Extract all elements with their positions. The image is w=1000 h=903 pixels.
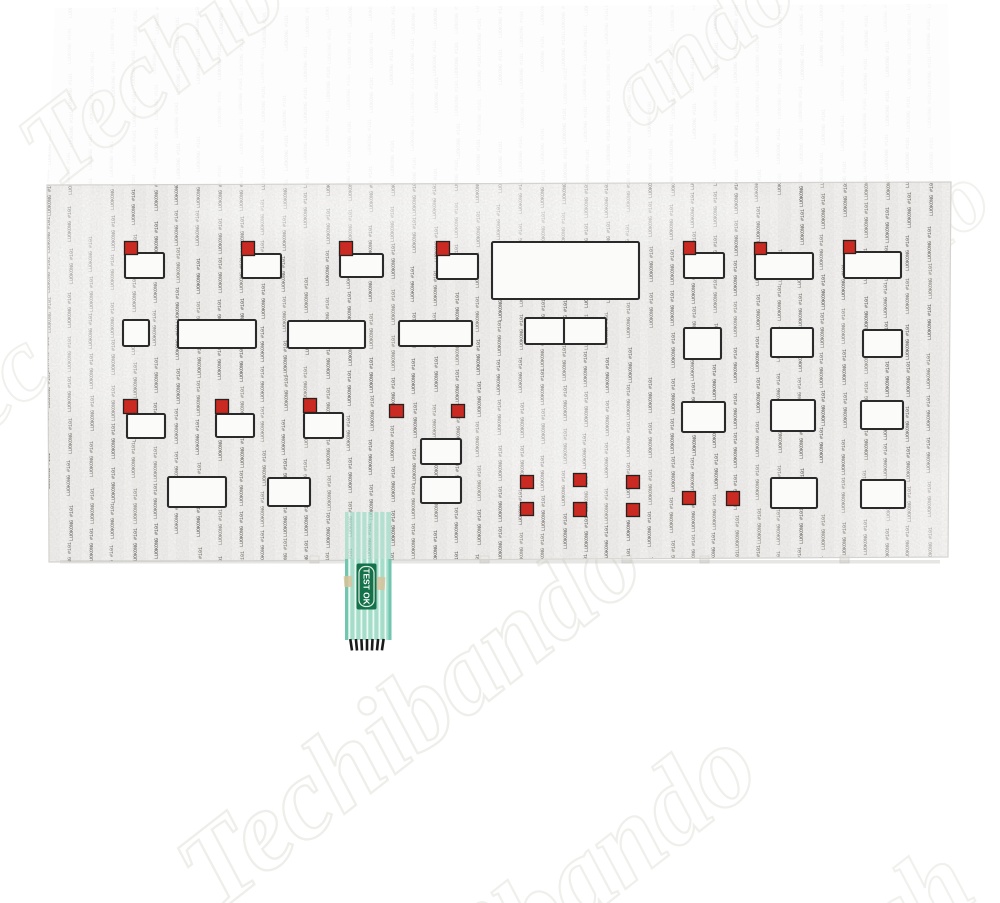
svg-text:LUOKONG #101: LUOKONG #101 [69,111,75,147]
svg-text:LUOKONG #101: LUOKONG #101 [627,80,633,116]
svg-text:LUOKONG #101: LUOKONG #101 [369,32,375,68]
svg-text:LUOKONG #101: LUOKONG #101 [498,141,504,177]
svg-text:LUOKONG #101: LUOKONG #101 [477,99,483,135]
svg-text:LUOKONG #101: LUOKONG #101 [864,15,870,51]
svg-text:LUOKONG #101: LUOKONG #101 [68,73,74,109]
svg-text:LUOKONG #101: LUOKONG #101 [778,43,784,79]
svg-text:LUOKONG #101: LUOKONG #101 [692,103,698,139]
svg-text:LUOKONG #101: LUOKONG #101 [713,85,719,121]
svg-text:LUOKONG #101: LUOKONG #101 [562,108,568,144]
svg-text:LUOKONG #101: LUOKONG #101 [648,20,654,56]
svg-text:LUOKONG #101: LUOKONG #101 [671,83,677,119]
svg-text:LUOKONG #101: LUOKONG #101 [154,127,160,163]
svg-text:LUOKONG #101: LUOKONG #101 [906,96,912,132]
svg-text:LUOKONG #101: LUOKONG #101 [606,90,612,126]
svg-text:LUOKONG #101: LUOKONG #101 [714,42,720,78]
svg-text:LUOKONG #101: LUOKONG #101 [929,137,935,173]
svg-text:LUOKONG #101: LUOKONG #101 [498,49,504,85]
svg-text:LUOKONG #101: LUOKONG #101 [498,2,504,38]
svg-text:LUOKONG #101: LUOKONG #101 [563,147,569,183]
svg-text:LUOKONG #101: LUOKONG #101 [262,12,268,48]
svg-text:LUOKONG #101: LUOKONG #101 [154,84,160,120]
svg-text:LUOKONG #101: LUOKONG #101 [111,61,117,97]
svg-text:LUOKONG #101: LUOKONG #101 [456,123,462,159]
svg-text:LUOKONG #101: LUOKONG #101 [648,148,654,184]
svg-text:LUOKONG #101: LUOKONG #101 [132,91,138,127]
svg-text:LUOKONG #101: LUOKONG #101 [907,13,913,49]
svg-text:LUOKONG #101: LUOKONG #101 [799,128,805,164]
svg-text:LUOKONG #101: LUOKONG #101 [735,86,741,122]
svg-text:LUOKONG #101: LUOKONG #101 [734,125,740,161]
svg-text:LUOKONG #101: LUOKONG #101 [369,77,375,113]
svg-text:LUOKONG #101: LUOKONG #101 [821,109,827,145]
svg-text:LUOKONG #101: LUOKONG #101 [176,143,182,179]
svg-text:LUOKONG #101: LUOKONG #101 [477,18,483,54]
svg-text:LUOKONG #101: LUOKONG #101 [391,3,397,39]
svg-text:LUOKONG #101: LUOKONG #101 [585,149,591,185]
svg-text:LUOKONG #101: LUOKONG #101 [606,129,612,165]
svg-text:LUOKONG #101: LUOKONG #101 [133,10,139,46]
svg-text:LUOKONG #101: LUOKONG #101 [799,0,805,35]
svg-text:LUOKONG #101: LUOKONG #101 [132,130,138,166]
svg-text:LUOKONG #101: LUOKONG #101 [434,77,440,113]
svg-text:LUOKONG #101: LUOKONG #101 [907,53,913,89]
svg-text:LUOKONG #101: LUOKONG #101 [606,49,612,85]
svg-text:LUOKONG #101: LUOKONG #101 [390,140,396,176]
svg-text:LUOKONG #101: LUOKONG #101 [778,2,784,38]
svg-text:LUOKONG #101: LUOKONG #101 [713,0,719,34]
svg-text:LUOKONG #101: LUOKONG #101 [90,51,96,87]
svg-text:LUOKONG #101: LUOKONG #101 [476,139,482,175]
svg-text:LUOKONG #101: LUOKONG #101 [885,90,891,126]
svg-text:LUOKONG #101: LUOKONG #101 [734,4,740,40]
svg-text:LUOKONG #101: LUOKONG #101 [284,135,290,171]
svg-text:LUOKONG #101: LUOKONG #101 [885,41,891,77]
svg-text:LUOKONG #101: LUOKONG #101 [326,66,332,102]
svg-text:LUOKONG #101: LUOKONG #101 [563,68,569,104]
svg-text:LUOKONG #101: LUOKONG #101 [284,15,290,51]
svg-text:LUOKONG #101: LUOKONG #101 [176,59,182,95]
svg-text:LUOKONG #101: LUOKONG #101 [520,92,526,128]
svg-text:LUOKONG #101: LUOKONG #101 [800,44,806,80]
svg-text:TEST OK: TEST OK [362,568,372,604]
svg-text:LUOKONG #101: LUOKONG #101 [477,55,483,91]
svg-text:LUOKONG #101: LUOKONG #101 [327,28,333,64]
svg-text:LUOKONG #101: LUOKONG #101 [627,121,633,157]
